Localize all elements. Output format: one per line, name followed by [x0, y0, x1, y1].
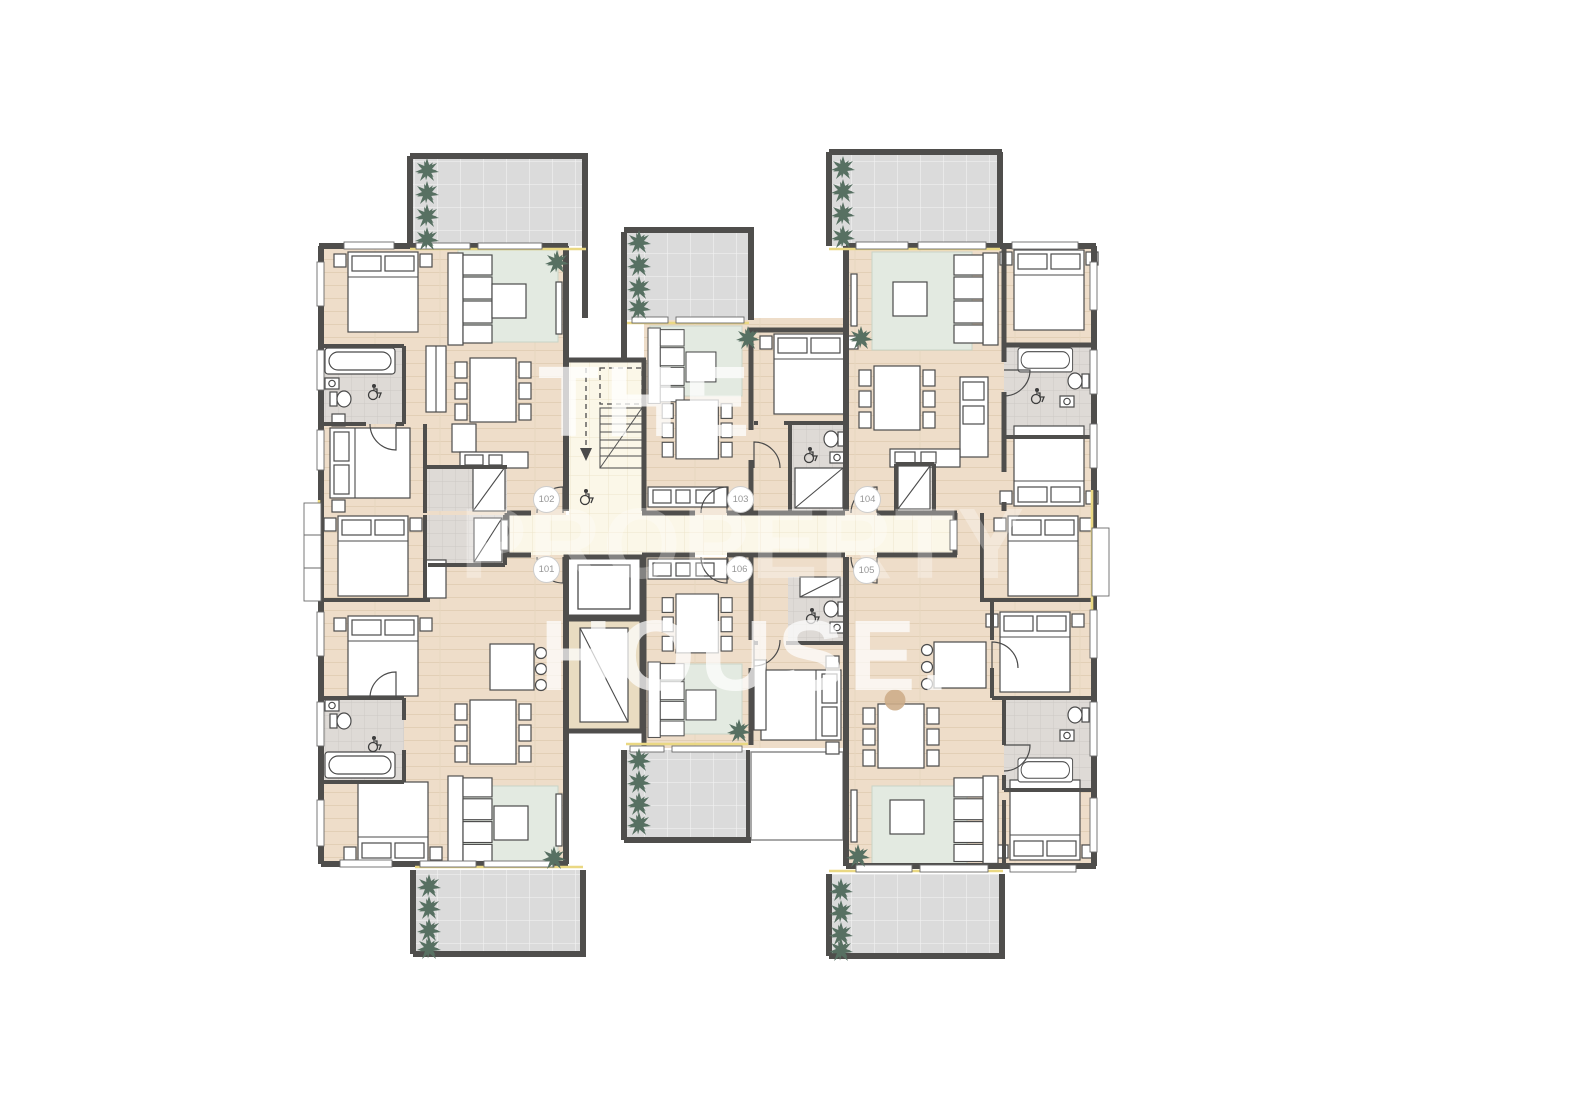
- bathtub-icon: [1018, 348, 1073, 372]
- bathtub-icon: [1018, 758, 1073, 782]
- sink-icon: [325, 378, 339, 389]
- sofa-icon: [954, 776, 998, 863]
- toilet-icon: [1068, 707, 1089, 723]
- sink-icon: [1060, 730, 1074, 741]
- bed-icon: [334, 616, 432, 696]
- sofa-icon: [448, 253, 492, 345]
- unit-badge-102: 102: [533, 486, 560, 513]
- lightwell-void: [751, 752, 843, 840]
- bed-icon: [324, 516, 422, 596]
- bed-icon: [344, 782, 442, 862]
- sofa-icon: [954, 253, 998, 345]
- terrace-bottom-right: [829, 874, 1002, 956]
- bed-icon: [1000, 250, 1098, 330]
- bathtub-icon: [325, 348, 395, 374]
- sink-icon: [1060, 396, 1074, 407]
- unit-badge-105: 105: [853, 557, 880, 584]
- sink-icon: [325, 700, 339, 711]
- floor-plan: THE PROPERTY HOUSE. 101 102 103 104 105 …: [0, 0, 1596, 1110]
- bed-icon: [986, 612, 1084, 692]
- dining-table-icon: [859, 366, 935, 430]
- coffee-table-icon: [893, 282, 927, 316]
- bay-window: [304, 503, 321, 601]
- bathtub-icon: [325, 752, 395, 778]
- unit-badge-103: 103: [727, 486, 754, 513]
- coffee-table-icon: [492, 284, 526, 318]
- unit-badge-101: 101: [533, 556, 560, 583]
- watermark-line-3: HOUSE.: [540, 606, 953, 706]
- bed-icon: [334, 252, 432, 332]
- coffee-table-icon: [494, 806, 528, 840]
- toilet-icon: [330, 713, 351, 729]
- unit-badge-106: 106: [726, 556, 753, 583]
- terrace-top-right: [829, 152, 1002, 246]
- toilet-icon: [1068, 373, 1089, 389]
- unit-badge-104: 104: [854, 486, 881, 513]
- watermark-line-1: THE: [538, 352, 756, 452]
- coffee-table-icon: [890, 800, 924, 834]
- sofa-icon: [448, 776, 492, 863]
- toilet-icon: [824, 431, 845, 447]
- dining-table-icon: [863, 704, 939, 768]
- dining-table-icon: [455, 700, 531, 764]
- bay-window: [1092, 528, 1109, 596]
- sink-icon: [830, 452, 844, 463]
- dining-table-icon: [455, 358, 531, 422]
- toilet-icon: [330, 391, 351, 407]
